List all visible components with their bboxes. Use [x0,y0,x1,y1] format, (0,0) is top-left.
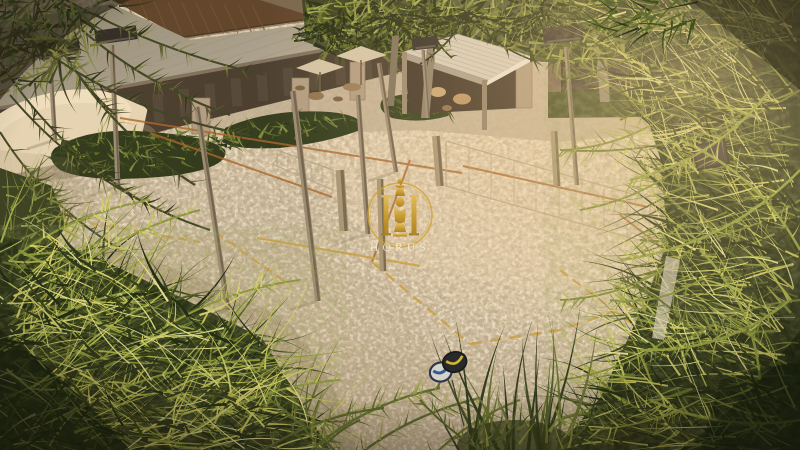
svg-text:HORUS: HORUS [370,242,430,254]
